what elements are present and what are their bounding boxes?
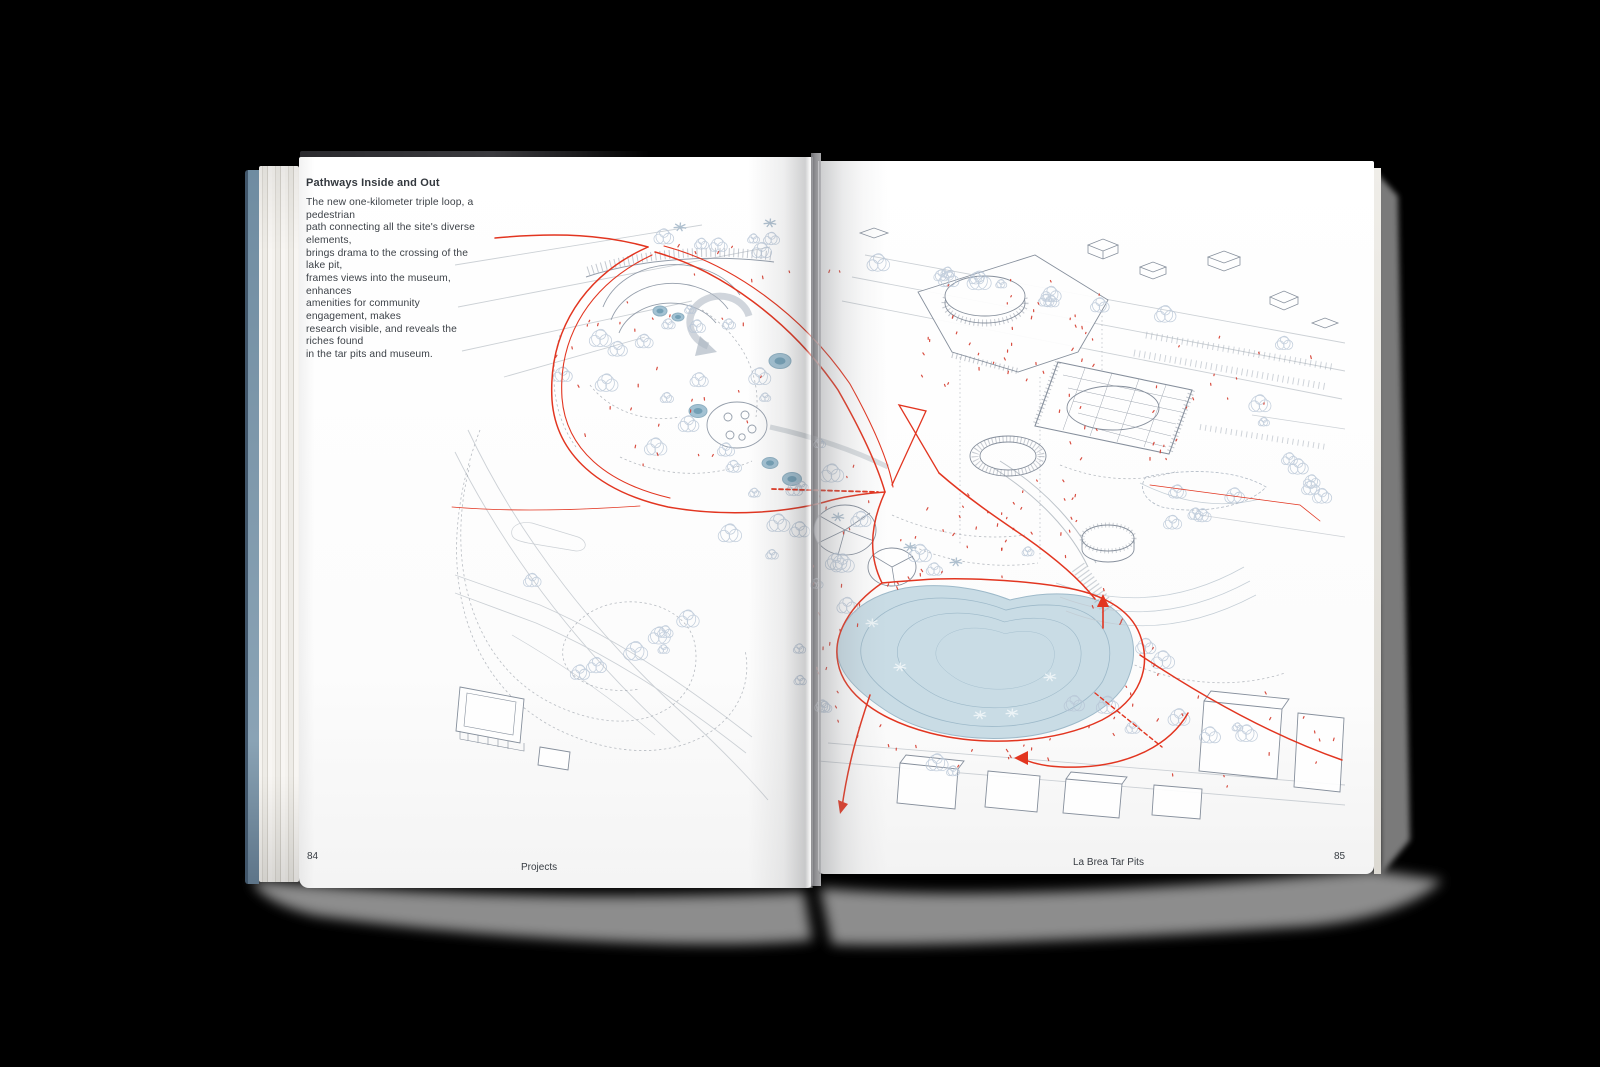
person-mark: [1333, 738, 1334, 741]
tree: [660, 392, 673, 402]
round-platform: [707, 402, 767, 448]
person-mark: [953, 533, 955, 535]
person-mark: [1005, 540, 1006, 542]
person-mark: [598, 323, 599, 325]
person-mark: [1026, 379, 1027, 381]
person-mark: [1070, 442, 1071, 444]
person-mark: [1182, 714, 1183, 716]
cylinder-structure: [1082, 525, 1134, 562]
person-mark: [1265, 692, 1266, 694]
person-mark: [880, 725, 881, 727]
person-mark: [1303, 717, 1304, 719]
small-ponds: [653, 306, 802, 486]
person-mark: [1050, 281, 1051, 283]
person-mark: [837, 691, 838, 693]
person-mark: [659, 424, 660, 426]
person-mark: [888, 745, 889, 747]
colonnade-building: [456, 687, 524, 751]
tree: [718, 524, 741, 542]
person-mark: [1037, 480, 1038, 481]
person-mark: [963, 506, 964, 507]
person-mark: [1080, 407, 1081, 409]
tree: [1258, 417, 1269, 426]
person-mark: [897, 587, 898, 590]
person-mark: [578, 385, 579, 387]
person-mark: [952, 316, 953, 319]
person-mark: [712, 455, 713, 457]
tree: [1169, 485, 1187, 499]
person-mark: [635, 445, 636, 448]
ring-colonnade: [970, 436, 1046, 476]
tree: [690, 372, 708, 386]
person-mark: [1038, 303, 1039, 305]
person-mark: [1092, 606, 1093, 609]
person-mark: [1153, 648, 1154, 650]
person-mark: [789, 271, 790, 273]
person-mark: [1063, 480, 1064, 482]
tree: [749, 368, 771, 385]
person-mark: [1010, 755, 1011, 757]
person-mark: [972, 750, 973, 752]
person-mark: [1050, 739, 1051, 740]
person-mark: [1311, 356, 1312, 359]
tree: [589, 329, 611, 346]
palm-tree: [950, 558, 963, 567]
person-mark: [1219, 336, 1220, 338]
person-mark: [1113, 734, 1114, 736]
person-mark: [652, 318, 653, 319]
tree: [1022, 547, 1034, 557]
person-mark: [969, 343, 970, 345]
person-mark: [813, 583, 814, 585]
page-number-left: 84: [307, 851, 318, 862]
tree: [1168, 709, 1190, 726]
tree: [1288, 459, 1308, 475]
tree: [635, 334, 653, 348]
tree: [722, 319, 736, 330]
person-mark: [631, 408, 632, 410]
person-mark: [1126, 686, 1127, 687]
person-mark: [1096, 429, 1097, 431]
palm-tree: [764, 219, 777, 228]
person-mark: [585, 434, 586, 437]
person-mark: [1089, 725, 1090, 727]
tree: [760, 393, 771, 402]
person-mark: [1093, 364, 1094, 366]
tree: [1151, 651, 1174, 669]
tree: [644, 438, 667, 455]
person-mark: [921, 569, 922, 571]
person-mark: [1072, 498, 1073, 500]
tree: [678, 416, 699, 432]
tree: [587, 657, 607, 672]
book-cover-edge: [245, 170, 259, 884]
tree: [523, 573, 541, 587]
person-mark: [1316, 762, 1317, 763]
person-mark: [1064, 499, 1065, 501]
person-mark: [1104, 589, 1105, 591]
page-number-right: 85: [1334, 851, 1345, 862]
person-mark: [1114, 717, 1115, 718]
person-mark: [1179, 346, 1180, 347]
person-mark: [1008, 371, 1009, 373]
person-mark: [927, 508, 928, 510]
photo-of-open-book: { "book": { "left_page": { "page_number"…: [0, 0, 1600, 1067]
person-mark: [916, 745, 917, 747]
person-mark: [1080, 458, 1081, 460]
running-footer-left: Projects: [521, 862, 557, 873]
person-mark: [853, 465, 854, 467]
person-mark: [1021, 508, 1022, 510]
roof-pavilion: [814, 505, 876, 555]
person-mark: [1006, 749, 1008, 751]
person-mark: [695, 252, 696, 254]
person-mark: [987, 511, 988, 513]
person-mark: [1319, 739, 1320, 741]
person-mark: [589, 320, 590, 322]
tree: [1275, 336, 1292, 349]
person-mark: [948, 285, 949, 286]
person-mark: [1227, 786, 1228, 787]
person-mark: [1075, 325, 1076, 327]
person-mark: [1024, 745, 1025, 746]
tree: [1164, 515, 1182, 529]
tree: [694, 238, 708, 249]
person-mark: [763, 276, 764, 279]
person-mark: [1176, 439, 1177, 441]
tree: [837, 597, 858, 613]
person-mark: [1013, 503, 1014, 505]
person-mark: [978, 353, 979, 355]
person-mark: [1082, 359, 1083, 361]
person-mark: [761, 376, 762, 378]
person-mark: [923, 353, 924, 355]
tree: [793, 644, 805, 654]
person-mark: [1043, 371, 1044, 373]
person-mark: [1031, 316, 1032, 319]
person-mark: [732, 246, 733, 247]
person-mark: [678, 245, 679, 247]
person-mark: [948, 383, 949, 385]
tree: [662, 319, 676, 329]
person-mark: [1069, 530, 1070, 532]
section-heading: Pathways Inside and Out: [306, 177, 440, 189]
body-paragraph: The new one-kilometer triple loop, a ped…: [306, 197, 482, 362]
person-mark: [627, 302, 628, 303]
person-mark: [1157, 719, 1158, 721]
tree: [1155, 305, 1177, 322]
person-mark: [956, 332, 957, 334]
tree: [658, 645, 670, 654]
tree: [794, 675, 807, 685]
person-mark: [657, 453, 658, 456]
person-mark: [747, 421, 748, 423]
person-mark: [959, 516, 960, 518]
tree: [749, 488, 761, 497]
tree: [926, 563, 942, 576]
site-plan-drawing: [440, 215, 1345, 825]
person-mark: [922, 375, 923, 377]
running-footer-right: La Brea Tar Pits: [1073, 857, 1144, 868]
tree: [595, 374, 618, 392]
person-mark: [915, 537, 916, 539]
person-mark: [945, 384, 946, 386]
palm-tree: [674, 223, 687, 232]
page-edges-stack: [259, 166, 299, 882]
tree: [748, 234, 760, 244]
person-mark: [838, 720, 839, 722]
tree: [1249, 395, 1271, 412]
person-mark: [857, 736, 858, 738]
tree: [825, 553, 846, 570]
person-mark: [692, 399, 693, 401]
tree: [726, 460, 742, 472]
person-mark: [1071, 517, 1072, 519]
person-mark: [1013, 528, 1014, 529]
person-mark: [1193, 398, 1194, 400]
person-mark: [942, 571, 943, 572]
person-mark: [1076, 521, 1077, 522]
tree: [767, 514, 790, 532]
person-mark: [818, 613, 819, 615]
person-mark: [835, 706, 836, 708]
tree: [677, 610, 700, 627]
person-mark: [739, 391, 740, 393]
person-mark: [1075, 495, 1076, 497]
person-mark: [826, 668, 827, 670]
right-fore-edge: [1374, 168, 1381, 874]
tree: [810, 578, 823, 588]
person-mark: [1011, 296, 1012, 297]
person-mark: [1031, 532, 1032, 534]
buildings: [456, 228, 1344, 819]
person-mark: [818, 672, 819, 674]
tree: [1136, 638, 1156, 654]
tree: [766, 549, 779, 559]
tree: [790, 521, 810, 537]
person-mark: [1198, 696, 1199, 698]
person-mark: [829, 270, 830, 272]
person-mark: [1048, 758, 1049, 761]
person-mark: [722, 318, 723, 319]
tree: [764, 232, 780, 245]
tree: [1313, 488, 1332, 503]
person-mark: [839, 271, 840, 272]
person-mark: [1007, 517, 1008, 518]
amphitheater: [586, 252, 774, 356]
tree: [624, 641, 648, 660]
courtyard-building: [1035, 362, 1192, 454]
tree: [717, 443, 734, 457]
person-mark: [1186, 407, 1187, 408]
tree: [820, 464, 844, 482]
tree: [1282, 453, 1298, 465]
person-mark: [657, 367, 658, 369]
